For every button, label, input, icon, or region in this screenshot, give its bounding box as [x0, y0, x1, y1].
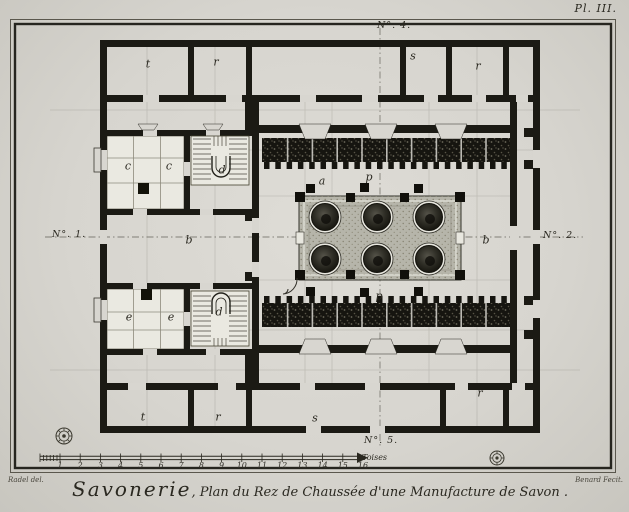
west-porches [94, 148, 101, 322]
stove-block [141, 289, 152, 300]
compass-rosette-right [490, 451, 504, 465]
engraved-plate: Pl. III. N°. 1. N°. 2. N°. 4. N°. 5. Toi… [0, 0, 629, 512]
staircase-lower [191, 291, 249, 346]
cauldron [413, 201, 445, 233]
drying-racks-bottom [262, 296, 510, 327]
stove-block [138, 183, 149, 194]
compass-rosette-left [56, 428, 72, 444]
boiler-platform [295, 183, 465, 297]
cauldron [361, 201, 393, 233]
cauldron [309, 243, 341, 275]
tiled-room-upper [107, 136, 184, 209]
cauldron [413, 243, 445, 275]
cauldron [361, 243, 393, 275]
floor-plan-drawing [0, 0, 629, 512]
drying-racks-top [262, 138, 510, 169]
tiled-room-lower [107, 289, 184, 349]
staircase-upper [191, 136, 249, 185]
cauldron [309, 201, 341, 233]
scale-bar [40, 453, 368, 464]
